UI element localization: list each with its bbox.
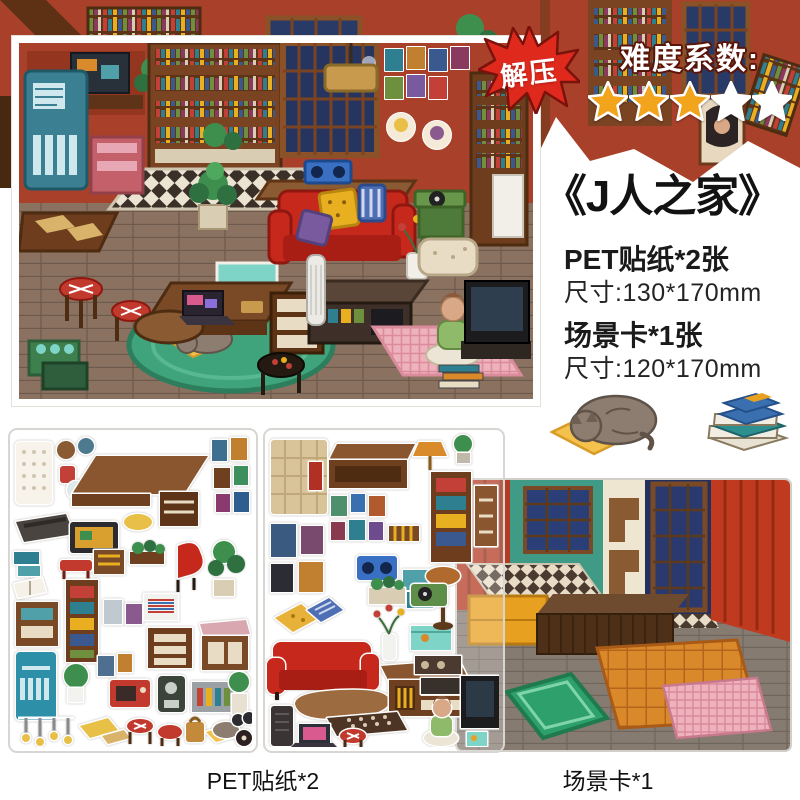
- footer-label-pet-stickers: PET贴纸*2: [163, 762, 363, 796]
- sticker-sheet-1: [8, 428, 258, 753]
- red-sofa: [269, 185, 415, 263]
- difficulty-stars: [584, 81, 796, 121]
- red-panel-wall: [711, 480, 790, 642]
- star-icon: [670, 81, 710, 121]
- difficulty-label: 难度系数:: [584, 34, 796, 78]
- scene-card: [455, 478, 792, 752]
- star-icon: [752, 81, 792, 121]
- difficulty-section: 难度系数:: [584, 34, 796, 121]
- stress-relief-badge: 解压: [478, 26, 580, 114]
- spec-pet-sticker-name: PET贴纸*2张: [564, 238, 796, 278]
- spec-pet-sticker-size: 尺寸:130*170mm: [564, 273, 796, 309]
- spec-scene-card-size: 尺寸:120*170mm: [564, 349, 796, 385]
- sticker-sheet-2: [263, 428, 505, 753]
- sleeping-cat-icon: [552, 396, 656, 454]
- cat-and-books-illustration: [548, 386, 793, 458]
- pink-rug: [663, 678, 771, 738]
- footer-label-scene-card: 场景卡*1: [508, 762, 708, 796]
- fridge: [25, 71, 87, 189]
- product-title: 《J人之家》: [528, 160, 796, 224]
- star-icon: [588, 81, 628, 121]
- main-scene-card: [12, 36, 540, 406]
- book-stack-icon: [709, 393, 786, 450]
- spec-scene-card-name: 场景卡*1张: [564, 314, 796, 354]
- star-icon: [629, 81, 669, 121]
- window: [283, 43, 377, 155]
- star-icon: [711, 81, 751, 121]
- bookshelf: [149, 43, 281, 169]
- main-room-illustration: [19, 43, 533, 399]
